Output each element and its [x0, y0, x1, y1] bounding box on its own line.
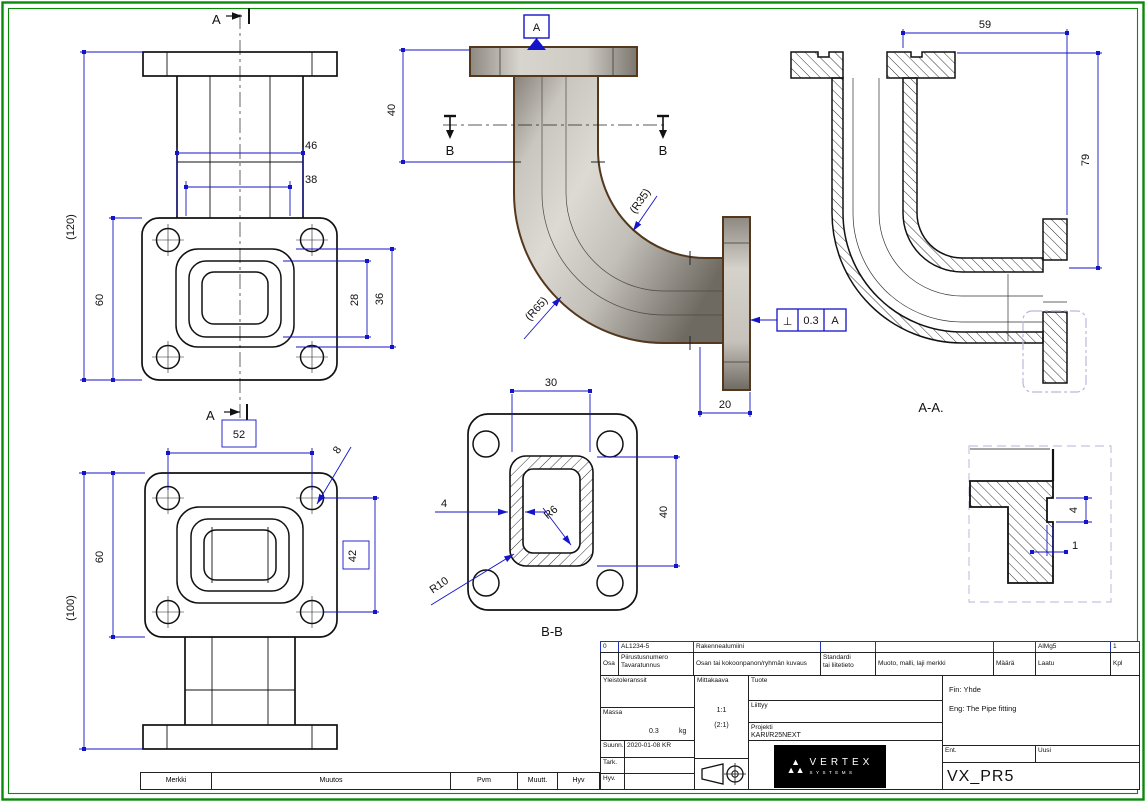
massa-cell: Massa 0.3 kg [600, 707, 695, 741]
name-eng: Eng: The Pipe fitting [949, 704, 1137, 713]
tolerance-datum: A [831, 315, 839, 327]
dim-52-boxed: 52 [233, 429, 245, 441]
dim-r10: R10 [428, 575, 451, 596]
section-aa-label: A-A. [918, 400, 943, 415]
label-b-right: B [659, 143, 668, 158]
top-flange [470, 47, 637, 76]
view-section-bb: 30 4 40 R6 R10 B-B [428, 377, 680, 639]
projection-symbol-cell [694, 758, 749, 790]
mittakaava-cell: Mittakaava 1:1 (2:1) [694, 675, 749, 759]
name-fin: Fin: Yhde [949, 685, 1137, 694]
dim-120: (120) [65, 214, 77, 240]
view-section-aa: 59 79 A-A. [791, 19, 1102, 415]
title-block: 0 AL1234-5 Rakennealumiini AlMg5 1 Osa P… [600, 641, 1140, 790]
scale-main: 1:1 [697, 707, 746, 716]
rev-merkki: Merkki [140, 772, 212, 790]
drawing-code: VX_PR5 [942, 762, 1140, 790]
yleistoleranssit-cell: Yleistoleranssit [600, 675, 695, 708]
bore-edges [853, 78, 1067, 341]
dim-60: 60 [94, 551, 106, 563]
suunn-label: Suunn. [600, 740, 625, 758]
header-maara: Määrä [993, 652, 1036, 676]
vertex-logo: ▲▲▲ VERTEX SYSTEMS [774, 745, 886, 788]
projection-symbol-icon [697, 760, 747, 788]
header-kpl: Kpl [1110, 652, 1140, 676]
hyv-value [624, 773, 695, 790]
svg-text:A: A [533, 22, 541, 34]
dimension-lines [79, 420, 379, 749]
view-front-top: 46 38 (120) 60 28 36 A A [65, 8, 396, 423]
header-muoto: Muoto, malli, laji merkki [875, 652, 994, 676]
section-bb-label: B-B [541, 624, 563, 639]
massa-unit: kg [679, 728, 686, 737]
dimension-lines [80, 52, 396, 380]
drawing-sheet: 46 38 (120) 60 28 36 A A [0, 0, 1146, 802]
massa-value: 0.3 [649, 728, 659, 737]
rev-muutos: Muutos [211, 772, 451, 790]
dim-36: 36 [374, 293, 386, 305]
liittyy-cell: Liittyy [748, 700, 943, 723]
dim-40: 40 [658, 506, 670, 518]
label-b-left: B [446, 143, 455, 158]
revision-row: Merkki Muutos Pvm Muutt. Hyv [140, 772, 600, 790]
flange-corner-section [970, 481, 1053, 583]
svg-text:A: A [212, 12, 221, 27]
names-cell: Fin: Yhde Eng: The Pipe fitting [942, 675, 1140, 746]
tolerance-frame: ⊥ 0.3 A [777, 309, 846, 331]
ent-cell: Ent. [942, 745, 1036, 763]
dim-1: 1 [1072, 540, 1078, 552]
tolerance-symbol: ⊥ [783, 316, 793, 328]
dim-8: 8 [331, 444, 344, 456]
dim-40: 40 [386, 104, 398, 116]
dim-r6: R6 [542, 504, 560, 522]
rev-hyv: Hyv [557, 772, 600, 790]
dim-46: 46 [305, 140, 317, 152]
dim-42-boxed: 42 [347, 550, 359, 562]
dim-4: 4 [1068, 507, 1080, 513]
datum-flag-a: A [524, 15, 549, 50]
logo-cell: ▲▲▲ VERTEX SYSTEMS [748, 740, 943, 790]
header-la: Laatu [1035, 652, 1111, 676]
dim-30: 30 [545, 377, 557, 389]
dim-59: 59 [979, 19, 991, 31]
inner-wall-section [903, 78, 1043, 272]
scale-alt: (2:1) [697, 722, 746, 731]
header-standardi: Standardi [823, 654, 851, 661]
vertex-logo-brand: VERTEX [809, 757, 873, 770]
dim-38: 38 [305, 174, 317, 186]
dim-100: (100) [65, 595, 77, 621]
header-piirustusnumero: Piirustusnumero [621, 654, 668, 661]
tuote-cell: Tuote [748, 675, 943, 701]
dim-r35: (R35) [628, 187, 654, 216]
dim-20: 20 [719, 399, 731, 411]
dim-60: 60 [94, 294, 106, 306]
section-mark-a-top: A [212, 8, 249, 27]
uusi-cell: Uusi [1035, 745, 1140, 763]
header-osa: Osa [600, 652, 619, 676]
view-detail: 4 1 [969, 446, 1111, 602]
tolerance-value: 0.3 [803, 315, 818, 327]
svg-text:A: A [206, 408, 215, 423]
projekti-cell: Projekti KARI/R25NEXT [748, 722, 943, 741]
dim-79: 79 [1080, 154, 1092, 166]
vertex-logo-mark: ▲▲▲ [787, 759, 805, 773]
dim-4: 4 [441, 498, 447, 510]
vertex-logo-sub: SYSTEMS [809, 770, 873, 776]
outer-wall-section [832, 78, 1043, 343]
tark-value [624, 757, 695, 774]
header-tavaratunnus: Tavaratunnus [621, 662, 660, 669]
dim-r65: (R65) [523, 295, 550, 323]
hyv-label: Hyv. [600, 773, 625, 790]
dim-28: 28 [349, 294, 361, 306]
header-kuvaus: Osan tai kokoonpanon/ryhmän kuvaus [693, 652, 821, 676]
suunn-value: 2020-01-08 KR [624, 740, 695, 758]
view-front-bottom: 52 60 (100) 42 8 [65, 420, 379, 749]
tark-label: Tark. [600, 757, 625, 774]
rev-pvm: Pvm [450, 772, 518, 790]
header-standardi2: tai liitetieto [823, 662, 854, 669]
rev-muutt: Muutt. [517, 772, 558, 790]
view-pictorial: A B B 40 (R35) (R65) 20 [386, 15, 846, 417]
